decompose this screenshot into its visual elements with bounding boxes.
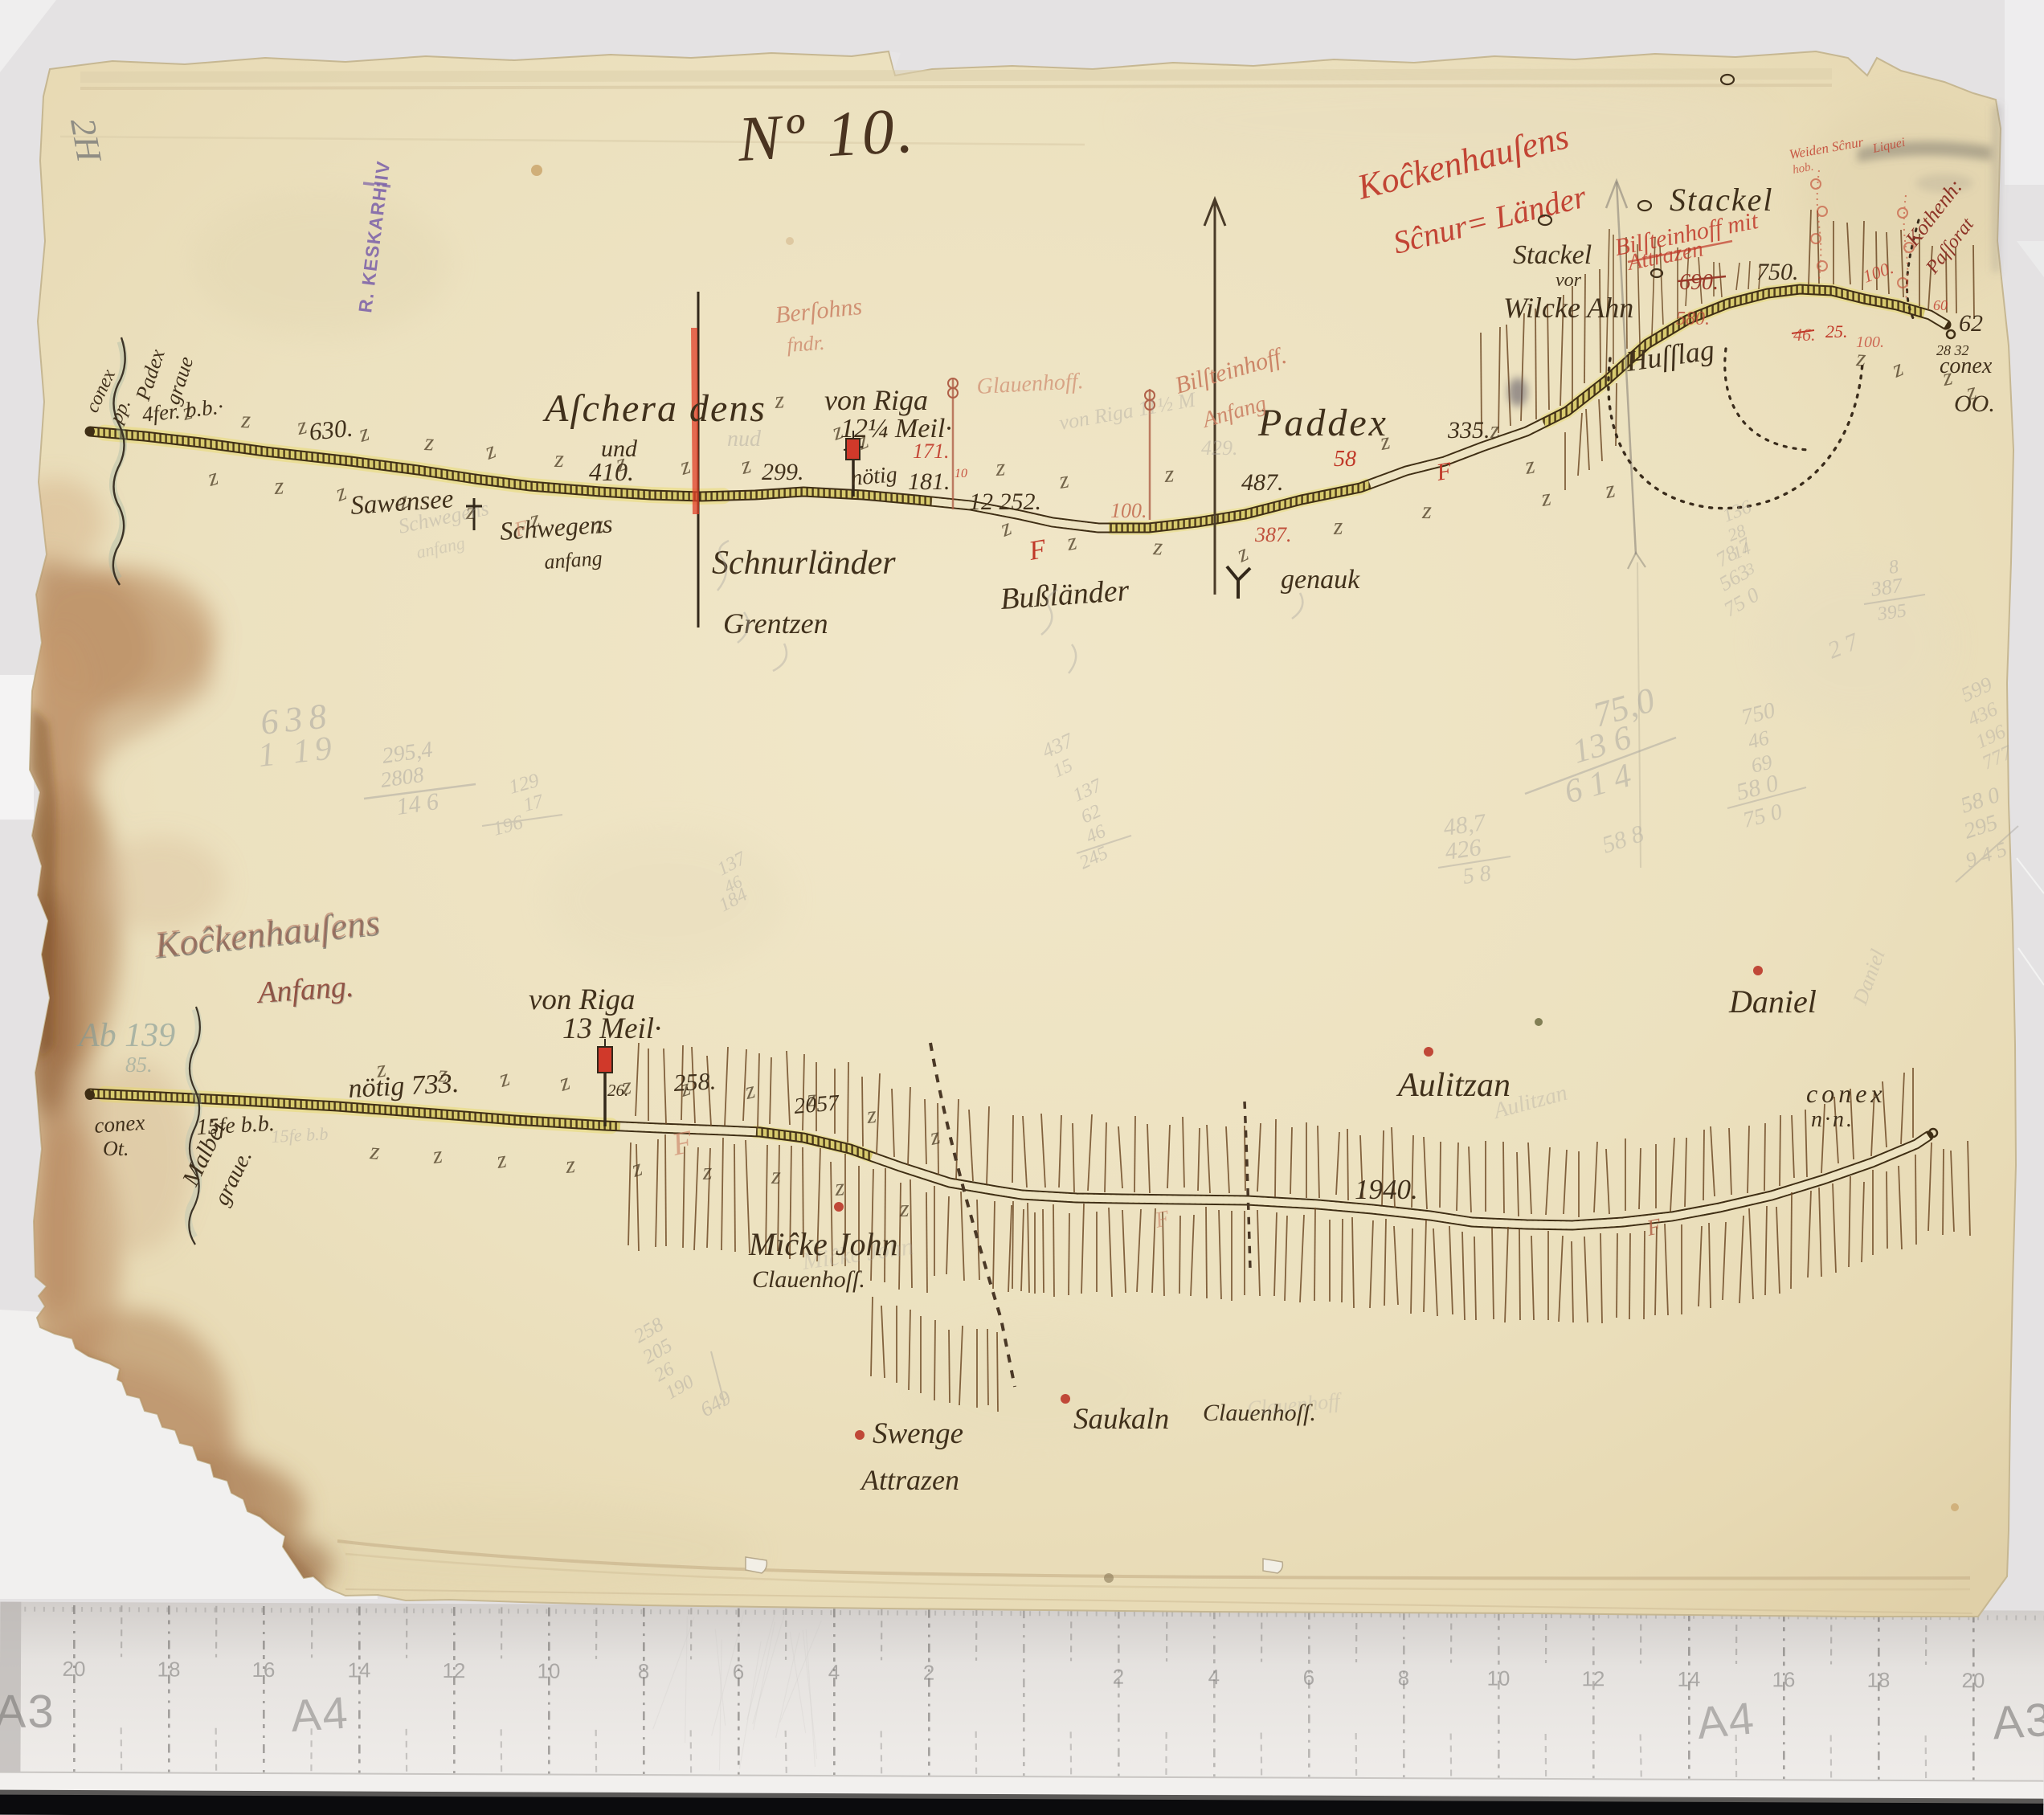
- svg-text:Nº 10.: Nº 10.: [735, 95, 918, 175]
- svg-text:Stackel: Stackel: [1670, 182, 1774, 218]
- svg-text:46.: 46.: [1793, 325, 1816, 345]
- svg-text:A4: A4: [1694, 1692, 1757, 1748]
- svg-text:181.: 181.: [908, 468, 950, 495]
- svg-text:z: z: [899, 1196, 910, 1222]
- svg-text:12: 12: [442, 1658, 465, 1682]
- svg-text:387: 387: [1869, 574, 1905, 601]
- svg-text:85.: 85.: [125, 1053, 153, 1077]
- svg-text:genauk: genauk: [1281, 565, 1360, 595]
- svg-text:conex: conex: [1806, 1079, 1887, 1108]
- svg-text:16: 16: [1772, 1667, 1795, 1691]
- svg-text:14: 14: [1677, 1667, 1700, 1691]
- svg-text:z: z: [240, 407, 251, 433]
- svg-text:Stackel: Stackel: [1513, 240, 1592, 270]
- svg-text:487.: 487.: [1241, 469, 1284, 496]
- svg-text:vor: vor: [1555, 270, 1582, 291]
- svg-text:18: 18: [1866, 1668, 1890, 1692]
- svg-text:12 252.: 12 252.: [969, 488, 1041, 515]
- svg-text:20: 20: [1961, 1668, 1985, 1692]
- svg-text:26.: 26.: [607, 1081, 628, 1100]
- svg-text:Ot.: Ot.: [103, 1137, 129, 1160]
- svg-text:258.: 258.: [673, 1068, 717, 1097]
- svg-text:2H: 2H: [63, 115, 109, 166]
- svg-text:Saukaln: Saukaln: [1073, 1403, 1169, 1436]
- svg-text:5 8: 5 8: [1461, 860, 1493, 889]
- svg-text:nötig: nötig: [850, 462, 898, 491]
- svg-text:Miĉke John: Miĉke John: [748, 1226, 897, 1262]
- svg-text:z: z: [1152, 533, 1164, 561]
- svg-text:z: z: [833, 1174, 845, 1201]
- svg-text:nötig 733.: nötig 733.: [347, 1069, 460, 1104]
- svg-text:2057: 2057: [793, 1090, 840, 1119]
- svg-text:2: 2: [1113, 1665, 1125, 1689]
- svg-text:10: 10: [537, 1659, 560, 1683]
- svg-text:z: z: [273, 472, 285, 500]
- svg-text:Attrazen: Attrazen: [860, 1464, 959, 1496]
- svg-text:580.: 580.: [1676, 309, 1710, 329]
- svg-text:25.: 25.: [1825, 321, 1848, 341]
- svg-text:426: 426: [1443, 834, 1482, 865]
- svg-text:Grentzen: Grentzen: [723, 607, 828, 640]
- svg-text:10: 10: [1486, 1666, 1510, 1690]
- svg-text:4: 4: [828, 1660, 840, 1684]
- svg-text:100.: 100.: [1856, 333, 1884, 351]
- svg-text:Schnurländer: Schnurländer: [712, 545, 896, 582]
- svg-text:20: 20: [62, 1657, 85, 1681]
- svg-text:Swenge: Swenge: [873, 1417, 963, 1450]
- svg-text:z: z: [1163, 460, 1175, 488]
- svg-text:2: 2: [923, 1661, 935, 1685]
- svg-text:z: z: [773, 386, 785, 414]
- svg-text:10: 10: [955, 467, 967, 480]
- svg-text:15fе b.b: 15fе b.b: [271, 1123, 329, 1147]
- svg-text:62: 62: [1959, 310, 1983, 337]
- svg-text:60: 60: [1933, 297, 1948, 313]
- svg-text:18: 18: [157, 1657, 180, 1681]
- svg-text:690.: 690.: [1679, 270, 1719, 295]
- svg-text:630.: 630.: [308, 413, 354, 445]
- svg-text:A4: A4: [289, 1686, 350, 1741]
- svg-text:1940.: 1940.: [1355, 1174, 1418, 1205]
- svg-text:58: 58: [1334, 447, 1356, 472]
- svg-text:8: 8: [638, 1659, 650, 1683]
- svg-text:16: 16: [251, 1658, 275, 1682]
- svg-text:395: 395: [1875, 600, 1907, 625]
- svg-text:Ab 139: Ab 139: [76, 1017, 175, 1054]
- svg-text:z: z: [1421, 497, 1433, 524]
- svg-text:750.: 750.: [1756, 259, 1799, 285]
- svg-text:z: z: [423, 429, 435, 456]
- svg-text:von Riga: von Riga: [824, 384, 928, 416]
- svg-text:410.: 410.: [589, 457, 634, 486]
- svg-text:6: 6: [733, 1660, 745, 1684]
- svg-text:A3: A3: [1991, 1694, 2044, 1750]
- svg-text:8: 8: [1398, 1666, 1410, 1690]
- svg-text:A3: A3: [0, 1686, 55, 1738]
- svg-text:299.: 299.: [762, 459, 804, 485]
- svg-text:conex: conex: [1940, 354, 1993, 378]
- svg-text:z: z: [1489, 417, 1500, 444]
- svg-text:4: 4: [1208, 1665, 1220, 1689]
- svg-text:Paddex: Paddex: [1257, 402, 1388, 444]
- svg-text:von Riga: von Riga: [529, 983, 636, 1016]
- svg-text:OO.: OO.: [1954, 390, 1995, 417]
- svg-text:z: z: [995, 454, 1007, 481]
- svg-text:Clauenhoſſ.: Clauenhoſſ.: [752, 1266, 865, 1293]
- svg-text:13 Meil·: 13 Meil·: [562, 1012, 661, 1045]
- svg-text:nud: nud: [727, 427, 762, 452]
- svg-text:Anfang.: Anfang.: [255, 971, 356, 1011]
- svg-text:Daniel: Daniel: [1728, 983, 1817, 1020]
- svg-text:conex: conex: [93, 1110, 145, 1138]
- svg-text:335.: 335.: [1447, 417, 1490, 444]
- svg-text:z: z: [771, 1163, 782, 1189]
- svg-text:fndr.: fndr.: [786, 331, 825, 357]
- svg-text:14: 14: [347, 1658, 370, 1682]
- svg-text:z: z: [701, 1159, 713, 1185]
- svg-text:100.: 100.: [1110, 499, 1147, 522]
- svg-text:n·n.: n·n.: [1811, 1107, 1854, 1132]
- svg-text:Wilcke Ahn: Wilcke Ahn: [1503, 292, 1633, 324]
- svg-text:6: 6: [1303, 1666, 1315, 1690]
- svg-text:z: z: [1332, 513, 1343, 540]
- svg-text:387.: 387.: [1254, 523, 1292, 546]
- svg-text:Aſchera dens: Aſchera dens: [542, 387, 766, 430]
- svg-text:429.: 429.: [1201, 436, 1238, 460]
- svg-text:171.: 171.: [913, 439, 950, 463]
- svg-text:z: z: [554, 446, 565, 472]
- svg-text:12: 12: [1581, 1666, 1605, 1690]
- svg-text:anfang: anfang: [543, 546, 603, 574]
